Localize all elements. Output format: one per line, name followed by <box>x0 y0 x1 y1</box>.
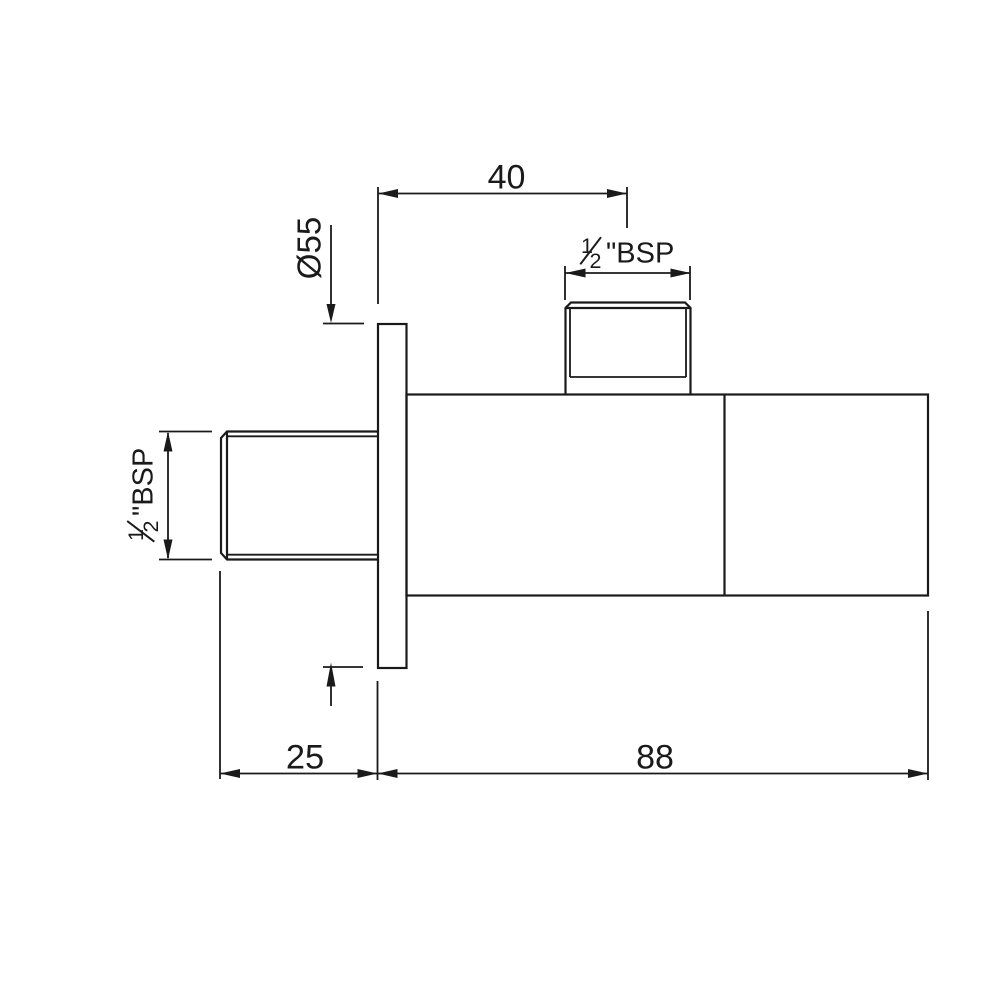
svg-text:"BSP: "BSP <box>606 238 674 270</box>
svg-text:Ø55: Ø55 <box>291 217 328 279</box>
svg-text:"BSP: "BSP <box>128 448 160 516</box>
svg-text:2: 2 <box>139 521 163 533</box>
svg-text:25: 25 <box>286 739 324 777</box>
svg-text:88: 88 <box>636 739 674 777</box>
svg-text:40: 40 <box>488 159 526 197</box>
svg-text:2: 2 <box>590 249 602 273</box>
